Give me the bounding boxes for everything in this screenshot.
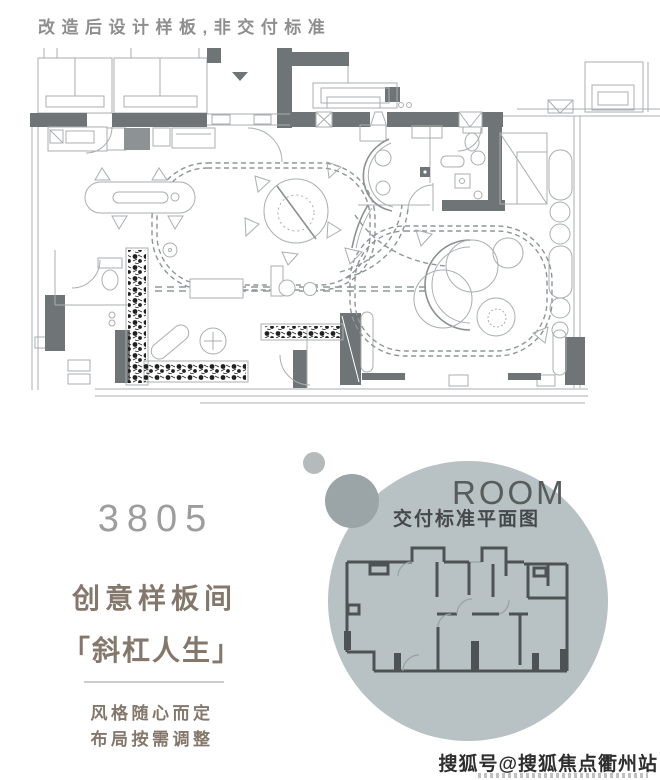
kitchenette [48, 127, 215, 151]
delivery-caption: 交付标准平面图 [393, 504, 540, 531]
watermark: 搜狐号@搜狐焦点衢州站 [438, 749, 658, 776]
watermark-subtext-strip [478, 773, 648, 778]
promo-subtitle: 「斜杠人生」 [32, 629, 272, 669]
promo-title: 创意样板间 [37, 577, 272, 617]
deco-circle-overlap [325, 474, 379, 528]
stairs [500, 133, 547, 204]
unit-number: 3805 [40, 498, 272, 541]
tagline-layout: 布局按需调整 [32, 725, 272, 750]
bay-window [313, 66, 412, 108]
closet-units [38, 48, 207, 113]
lobby-area [548, 62, 648, 113]
track-props [163, 243, 317, 298]
plants-hedge [126, 248, 343, 385]
promo-block: 3805 创意样板间 「斜杠人生」 [32, 498, 272, 669]
deco-circle-small [303, 452, 325, 474]
entry-arrow-icon [232, 72, 248, 81]
delivery-floor-plan [341, 541, 573, 677]
round-table [245, 162, 341, 265]
divider-line [84, 681, 224, 683]
tagline-style: 风格随心而定 [32, 699, 272, 724]
renovation-floor-plan [0, 0, 660, 430]
oval-table [85, 168, 195, 229]
bathroom [352, 125, 485, 248]
inset-walls [344, 548, 567, 671]
